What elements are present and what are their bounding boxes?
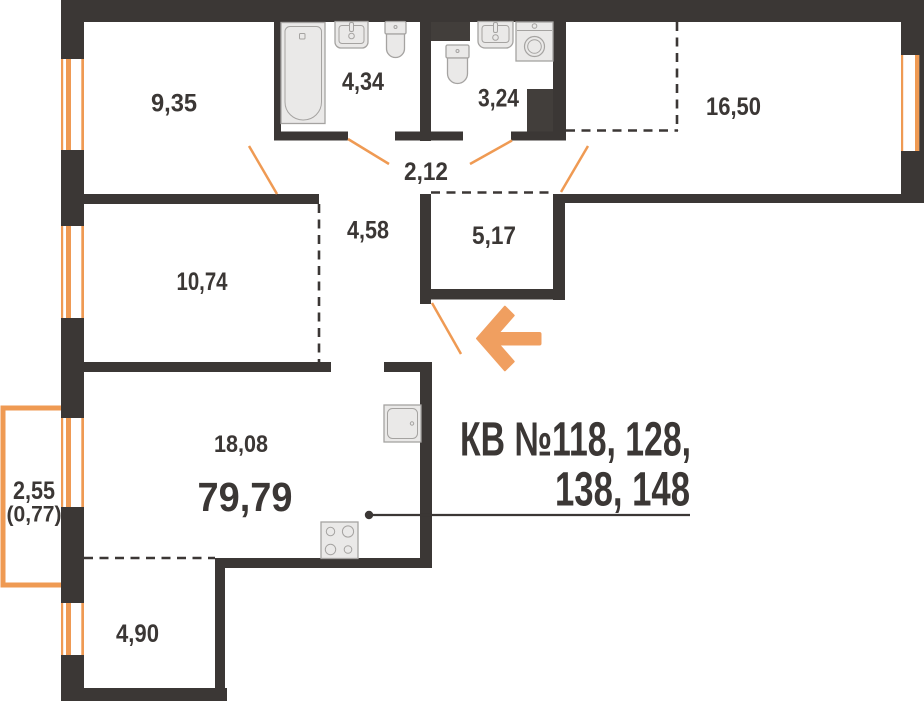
svg-text:18,08: 18,08 xyxy=(214,431,268,458)
svg-text:КВ №118, 128,: КВ №118, 128, xyxy=(460,414,691,467)
svg-text:16,50: 16,50 xyxy=(706,93,761,121)
svg-text:(0,77): (0,77) xyxy=(7,502,62,527)
svg-text:4,90: 4,90 xyxy=(116,620,159,648)
svg-text:2,12: 2,12 xyxy=(404,158,448,186)
svg-text:10,74: 10,74 xyxy=(177,268,228,296)
svg-text:5,17: 5,17 xyxy=(472,222,516,250)
svg-text:3,24: 3,24 xyxy=(478,85,519,113)
svg-text:4,34: 4,34 xyxy=(342,68,384,96)
svg-text:9,35: 9,35 xyxy=(151,90,197,118)
svg-text:79,79: 79,79 xyxy=(198,474,293,520)
svg-text:4,58: 4,58 xyxy=(347,217,389,245)
svg-text:138, 148: 138, 148 xyxy=(555,464,690,517)
